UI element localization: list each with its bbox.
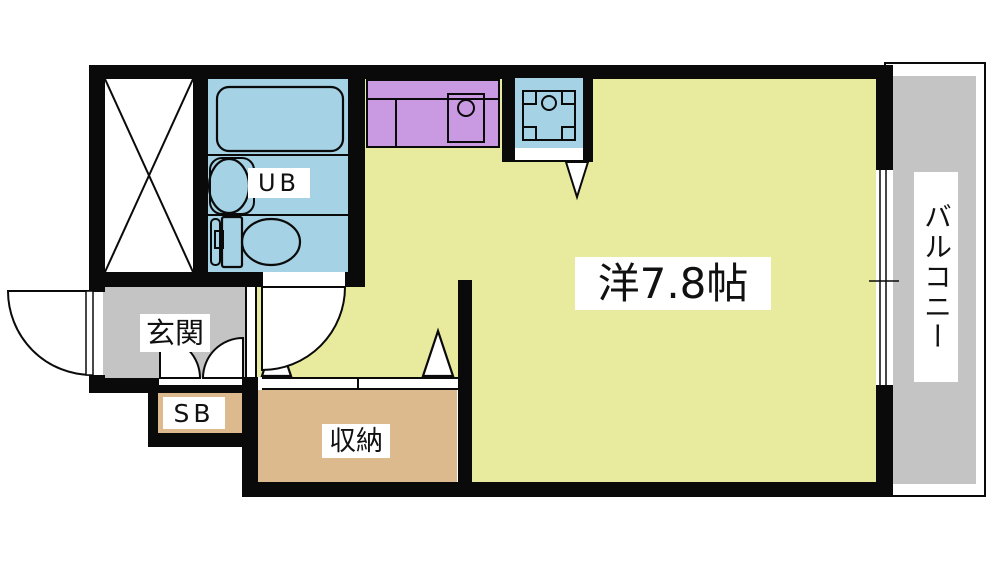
wall-right-lower xyxy=(876,385,893,497)
kitchen-counter xyxy=(366,79,500,148)
wall-closet-left xyxy=(242,377,258,482)
wall-bath-right xyxy=(348,65,365,287)
entrance-door-swing xyxy=(8,291,92,375)
wall-entrance-bottom-left xyxy=(89,378,159,393)
storage-label: 収納 xyxy=(322,424,390,458)
balcony-window-strip xyxy=(876,170,893,385)
main-room-floor-lower xyxy=(472,377,878,482)
washing-machine-door-track xyxy=(515,148,583,160)
shaft-floor xyxy=(105,79,193,272)
wall-shaft-bath-divider xyxy=(193,65,208,287)
entrance-hall-partition xyxy=(245,287,257,380)
balcony-label: バルコニー xyxy=(914,172,958,382)
wall-top xyxy=(89,65,893,79)
entrance-label: 玄関 xyxy=(140,314,210,352)
entrance-door-leaf xyxy=(86,291,93,375)
unit-bath-label: UB xyxy=(248,168,310,198)
closet-door-track xyxy=(262,377,458,390)
floor-plan: UB 玄関 SB 収納 洋7.8帖 バルコニー xyxy=(0,0,1000,562)
wall-closet-stub xyxy=(458,280,472,482)
main-room-label: 洋7.8帖 xyxy=(575,257,771,310)
hall-floor xyxy=(257,287,365,377)
wall-right-upper xyxy=(876,65,893,170)
wall-under-shaft-bath xyxy=(89,272,263,287)
wall-left-upper xyxy=(89,65,105,292)
wall-bottom xyxy=(242,482,893,497)
shoe-box-label: SB xyxy=(163,397,225,429)
washing-machine-floor xyxy=(515,78,583,148)
